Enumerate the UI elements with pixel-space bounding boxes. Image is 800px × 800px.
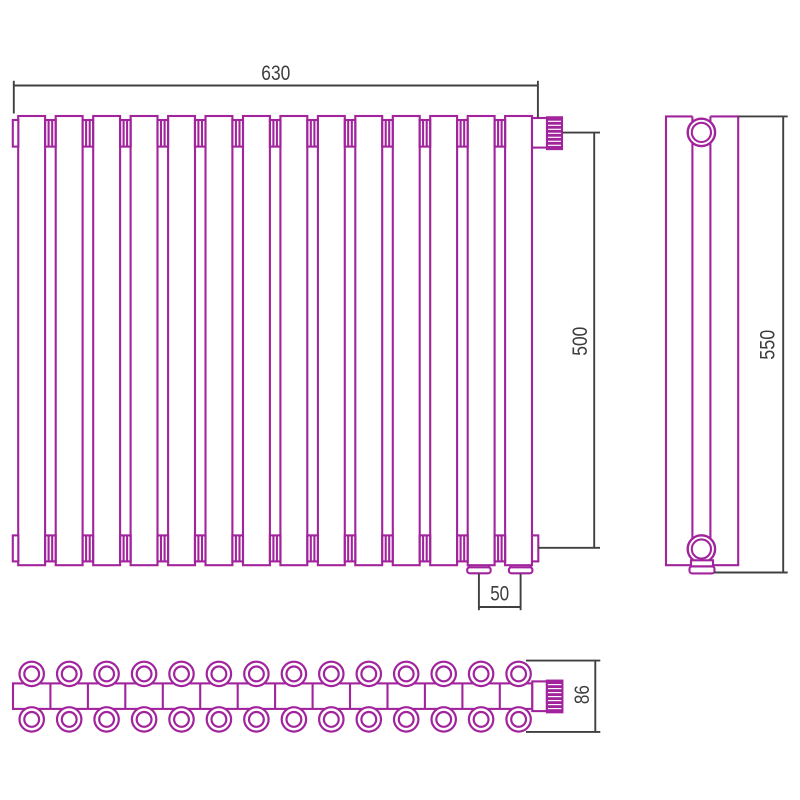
svg-text:630: 630 (261, 61, 290, 85)
svg-text:50: 50 (490, 582, 509, 606)
svg-text:550: 550 (756, 330, 780, 360)
svg-text:500: 500 (568, 327, 592, 356)
svg-text:86: 86 (570, 685, 594, 704)
